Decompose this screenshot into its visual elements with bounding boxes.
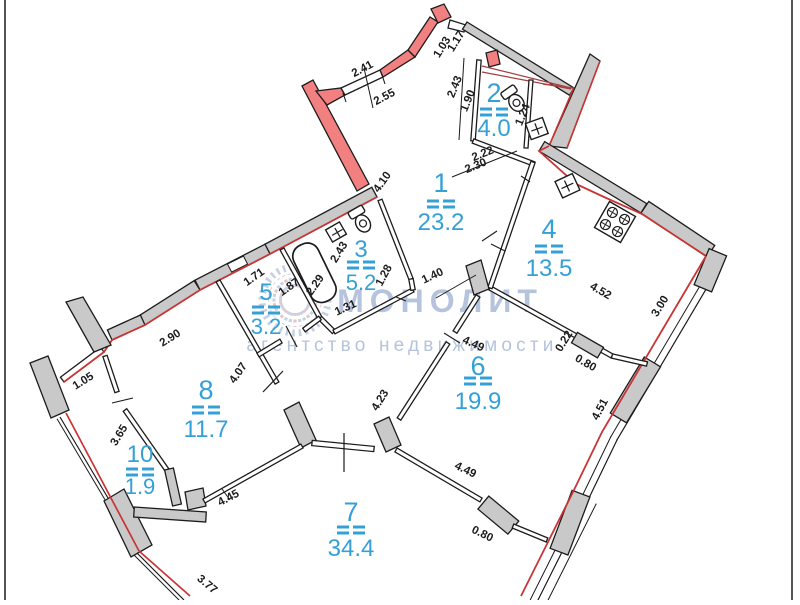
svg-text:агентство недвижимости: агентство недвижимости bbox=[246, 335, 557, 356]
svg-text:10: 10 bbox=[127, 441, 154, 468]
svg-text:4: 4 bbox=[541, 214, 556, 244]
svg-text:1.9: 1.9 bbox=[125, 474, 156, 499]
svg-text:23.2: 23.2 bbox=[418, 209, 465, 236]
svg-text:3.2: 3.2 bbox=[251, 314, 282, 339]
svg-text:5.2: 5.2 bbox=[346, 270, 377, 295]
svg-text:34.4: 34.4 bbox=[328, 535, 375, 562]
svg-text:13.5: 13.5 bbox=[526, 255, 573, 282]
svg-text:4.0: 4.0 bbox=[477, 115, 510, 142]
svg-text:2: 2 bbox=[486, 78, 501, 108]
svg-text:7: 7 bbox=[343, 497, 358, 527]
svg-text:8: 8 bbox=[198, 375, 213, 405]
svg-text:11.7: 11.7 bbox=[184, 416, 229, 443]
svg-text:19.9: 19.9 bbox=[455, 388, 502, 415]
svg-text:5: 5 bbox=[259, 279, 272, 306]
svg-text:3: 3 bbox=[354, 236, 367, 263]
svg-text:1: 1 bbox=[433, 168, 448, 198]
